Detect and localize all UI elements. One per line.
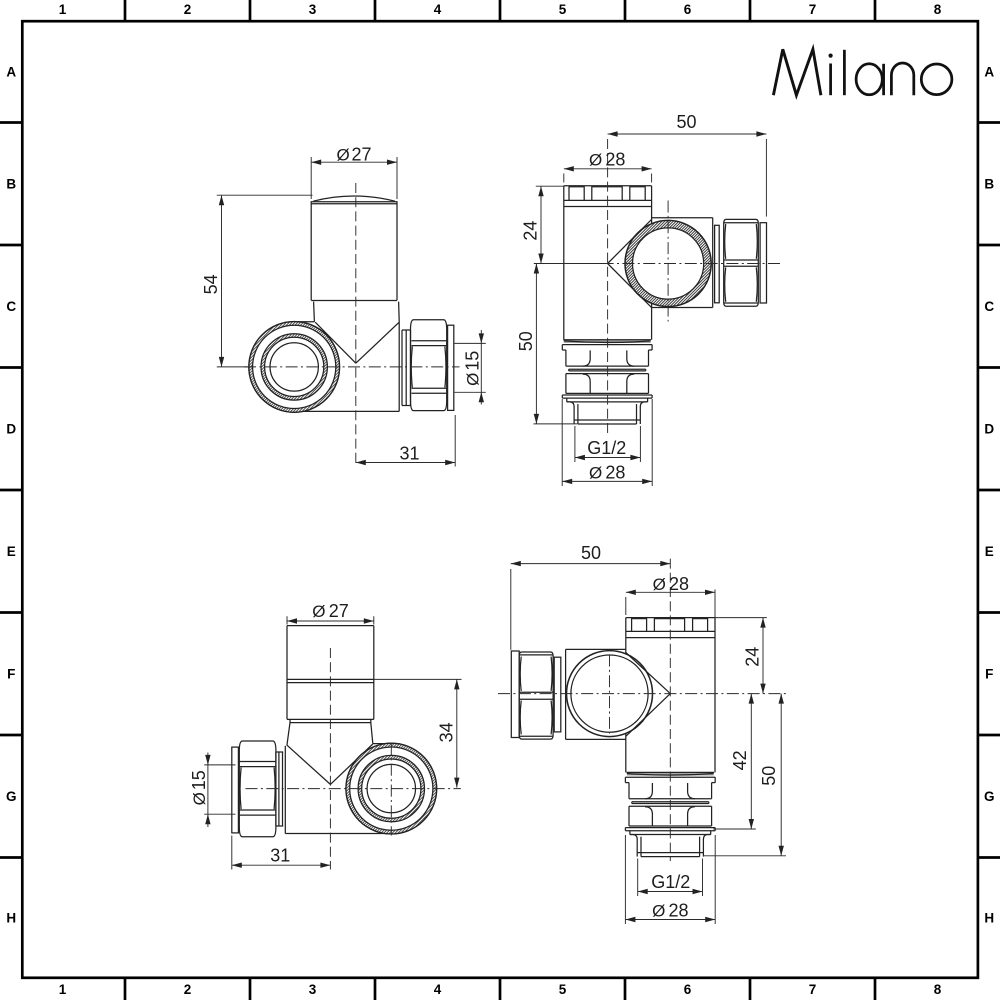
- svg-text:Ø27: Ø27: [312, 601, 348, 621]
- svg-text:Ø15: Ø15: [189, 770, 209, 805]
- svg-text:C: C: [6, 299, 16, 314]
- svg-text:H: H: [984, 910, 994, 925]
- svg-text:24: 24: [743, 647, 763, 667]
- svg-text:50: 50: [581, 543, 601, 563]
- svg-text:5: 5: [559, 982, 567, 997]
- svg-text:Ø28: Ø28: [589, 463, 625, 483]
- svg-text:Ø27: Ø27: [336, 144, 371, 164]
- svg-text:31: 31: [270, 845, 290, 865]
- svg-text:A: A: [6, 65, 16, 80]
- svg-text:1: 1: [59, 982, 67, 997]
- svg-text:G: G: [984, 789, 995, 804]
- svg-text:D: D: [6, 422, 16, 437]
- svg-text:G1/2: G1/2: [651, 872, 690, 892]
- svg-text:G1/2: G1/2: [587, 438, 626, 458]
- svg-text:4: 4: [434, 982, 442, 997]
- svg-text:E: E: [985, 544, 994, 559]
- svg-text:50: 50: [759, 766, 779, 786]
- svg-text:42: 42: [730, 750, 750, 770]
- svg-text:6: 6: [684, 2, 692, 17]
- svg-text:B: B: [6, 177, 16, 192]
- svg-text:31: 31: [399, 443, 419, 463]
- svg-text:8: 8: [934, 982, 942, 997]
- svg-text:3: 3: [309, 2, 317, 17]
- svg-text:H: H: [6, 910, 16, 925]
- svg-text:F: F: [7, 667, 15, 682]
- svg-text:2: 2: [184, 982, 192, 997]
- svg-text:B: B: [984, 177, 994, 192]
- svg-text:A: A: [984, 65, 994, 80]
- svg-text:7: 7: [809, 2, 817, 17]
- svg-text:24: 24: [521, 221, 541, 241]
- svg-text:7: 7: [809, 982, 817, 997]
- svg-text:Ø28: Ø28: [653, 574, 689, 594]
- svg-text:G: G: [6, 789, 17, 804]
- svg-text:2: 2: [184, 2, 192, 17]
- svg-text:5: 5: [559, 2, 567, 17]
- svg-text:Ø15: Ø15: [462, 351, 482, 386]
- svg-text:50: 50: [676, 112, 696, 132]
- svg-text:1: 1: [59, 2, 67, 17]
- svg-text:Ø28: Ø28: [652, 901, 688, 921]
- svg-text:34: 34: [437, 722, 457, 742]
- svg-text:6: 6: [684, 982, 692, 997]
- svg-text:8: 8: [934, 2, 942, 17]
- svg-text:C: C: [984, 299, 994, 314]
- svg-text:54: 54: [201, 274, 221, 294]
- svg-text:Ø28: Ø28: [589, 150, 625, 170]
- svg-text:4: 4: [434, 2, 442, 17]
- svg-text:D: D: [984, 422, 994, 437]
- svg-text:3: 3: [309, 982, 317, 997]
- svg-text:50: 50: [516, 331, 536, 351]
- svg-text:E: E: [7, 544, 16, 559]
- svg-text:F: F: [985, 667, 993, 682]
